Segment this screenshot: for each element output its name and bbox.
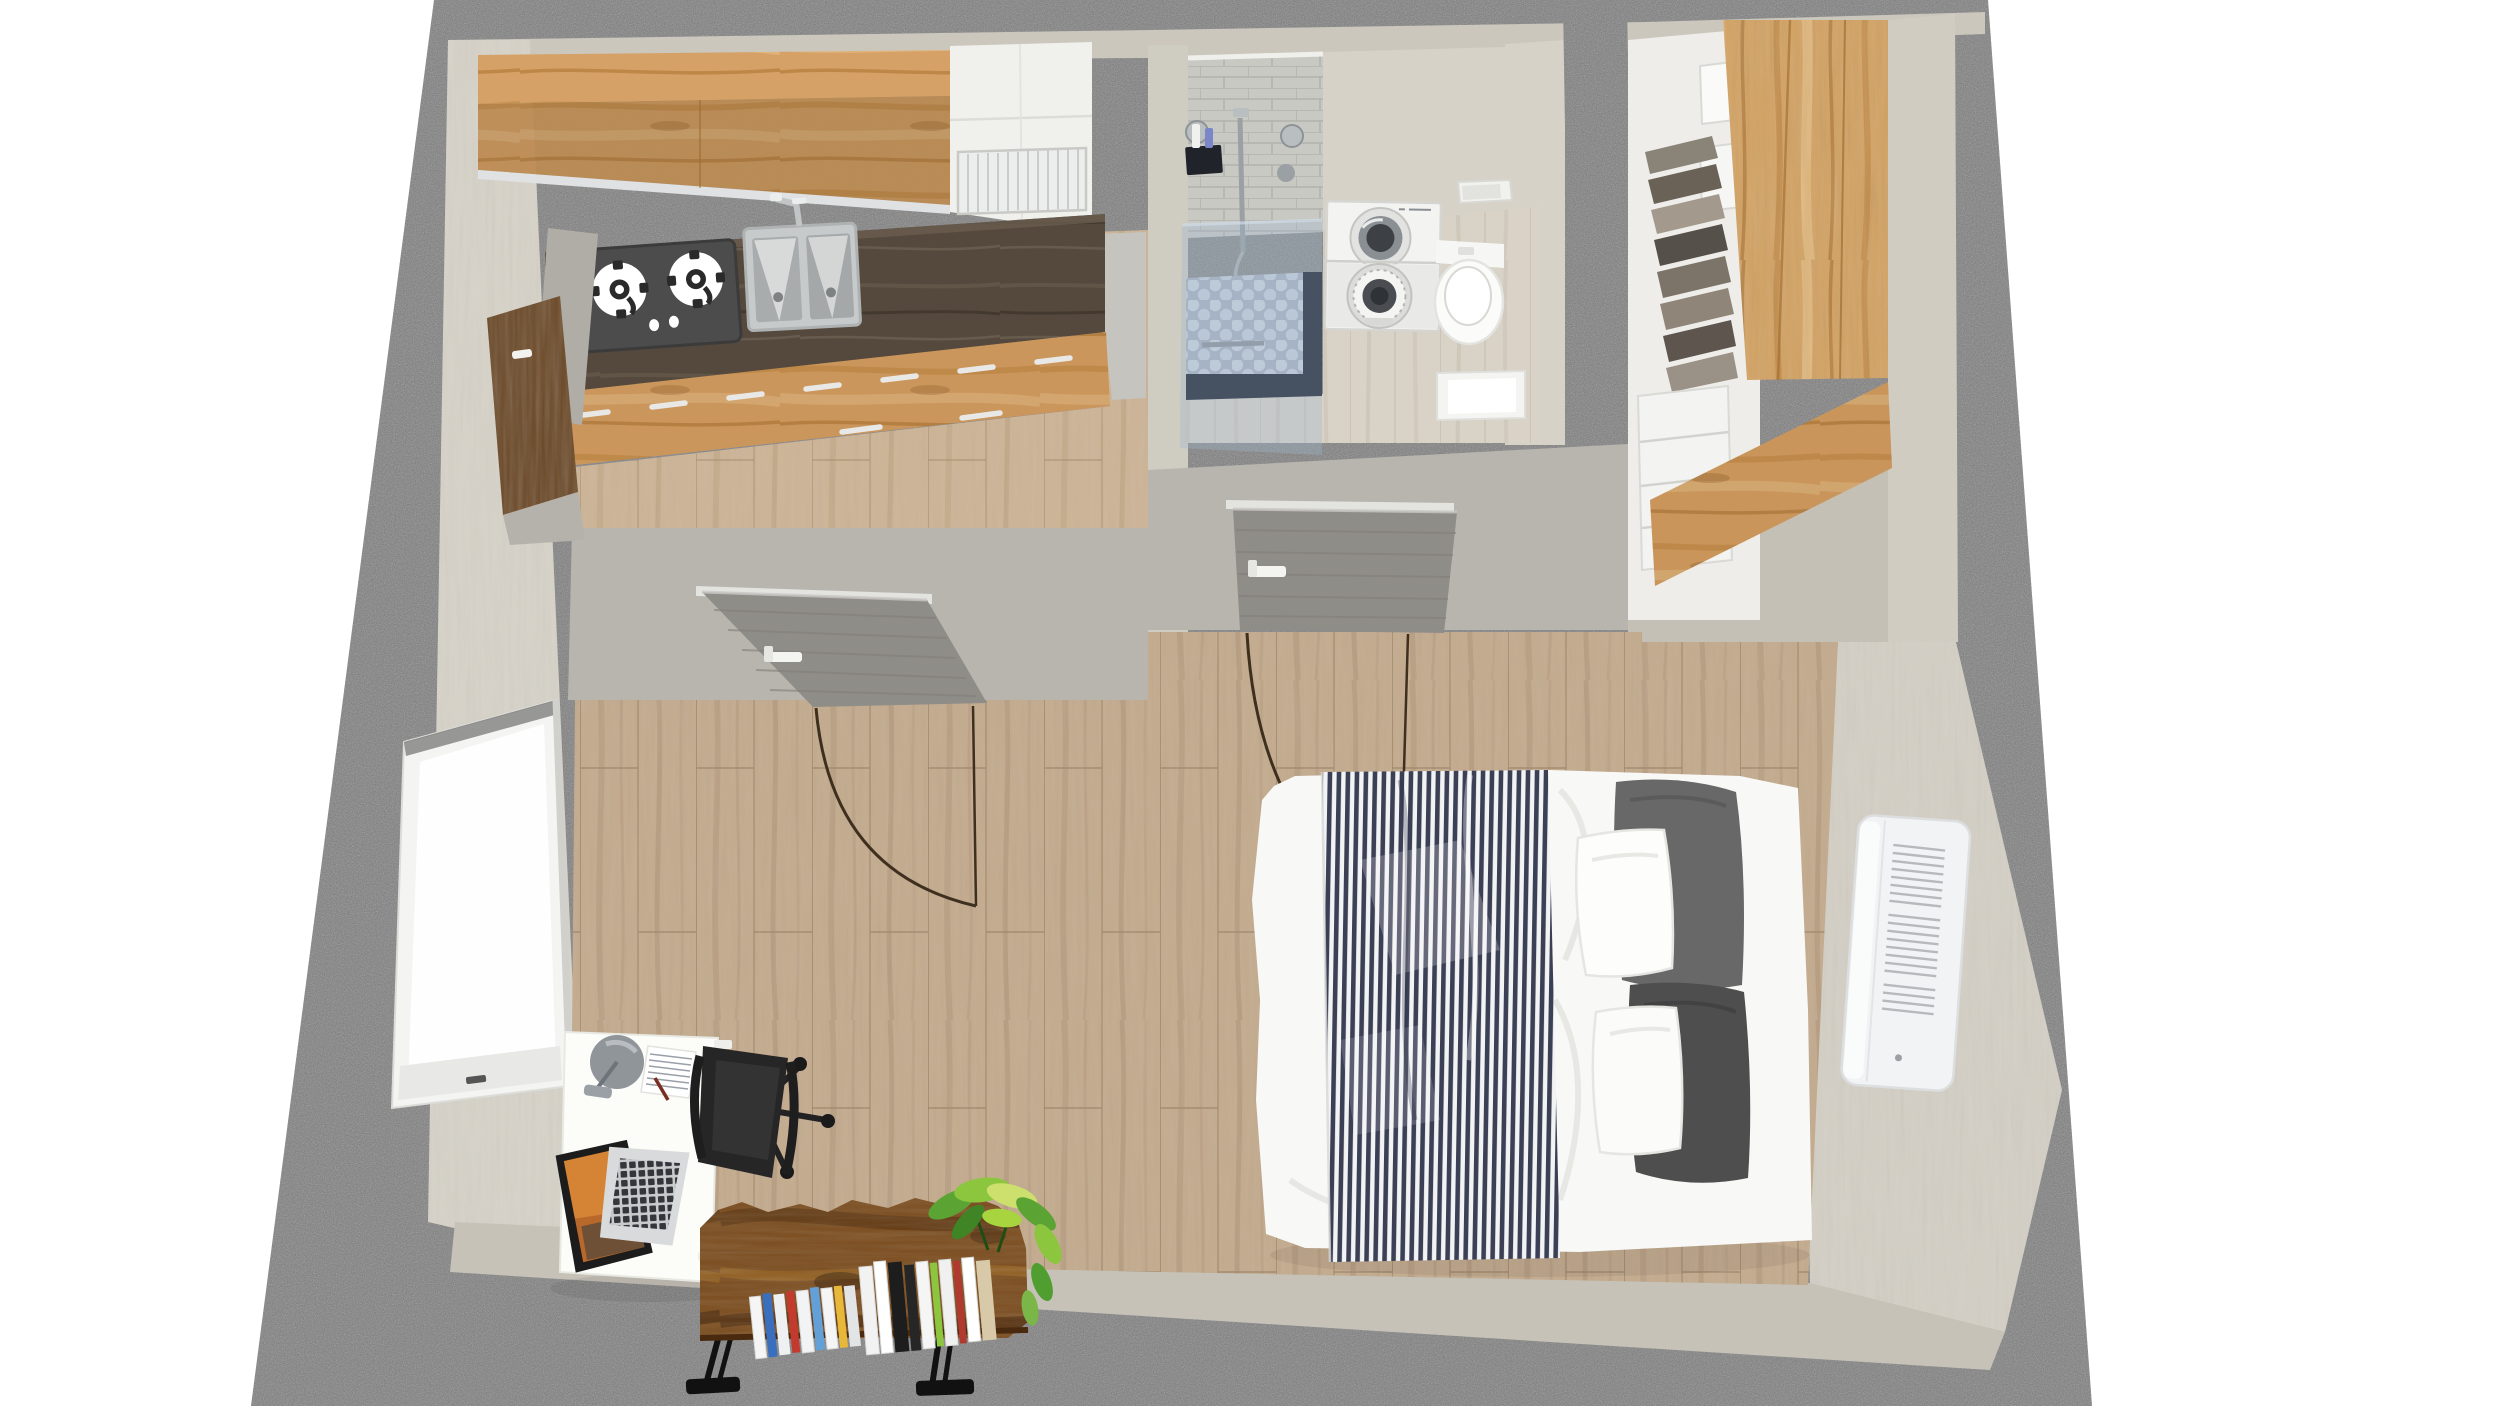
caster bbox=[821, 1114, 835, 1128]
chair-cushion bbox=[712, 1060, 780, 1160]
desk-leg-tab bbox=[714, 1040, 732, 1049]
shower-head bbox=[1233, 108, 1249, 117]
flush-button bbox=[1458, 247, 1474, 255]
air-conditioner[interactable] bbox=[1841, 814, 1972, 1091]
door-handle bbox=[1252, 566, 1286, 577]
dish-rack[interactable] bbox=[958, 148, 1086, 214]
shower-glass bbox=[1180, 220, 1322, 455]
pillow-white-bottom bbox=[1593, 1007, 1682, 1155]
concrete-column bbox=[1563, 0, 1634, 440]
room-bathroom bbox=[1180, 47, 1540, 455]
vanity[interactable] bbox=[1437, 371, 1525, 420]
closet-right-wall bbox=[1888, 14, 1958, 642]
door-handle-base bbox=[1248, 560, 1257, 577]
room-kitchen bbox=[478, 42, 1148, 545]
door-handle-base bbox=[764, 646, 773, 662]
striped-blanket bbox=[1322, 770, 1560, 1262]
toilet[interactable] bbox=[1435, 240, 1504, 344]
gas-cooktop[interactable] bbox=[571, 239, 742, 352]
washer-dryer[interactable] bbox=[1325, 201, 1441, 331]
window[interactable] bbox=[392, 700, 570, 1108]
floor-plan-stage bbox=[0, 0, 2500, 1406]
door-handle bbox=[768, 652, 802, 662]
paper-sheet[interactable] bbox=[641, 1046, 696, 1100]
shower-control bbox=[1277, 164, 1295, 182]
window-glass bbox=[408, 724, 556, 1084]
double-bed[interactable] bbox=[1252, 770, 1812, 1277]
floor-plan-canvas bbox=[0, 0, 2500, 1406]
shower-valve bbox=[1281, 125, 1303, 147]
wall-shelf[interactable] bbox=[1458, 180, 1512, 203]
pillow-white-top bbox=[1576, 830, 1673, 977]
